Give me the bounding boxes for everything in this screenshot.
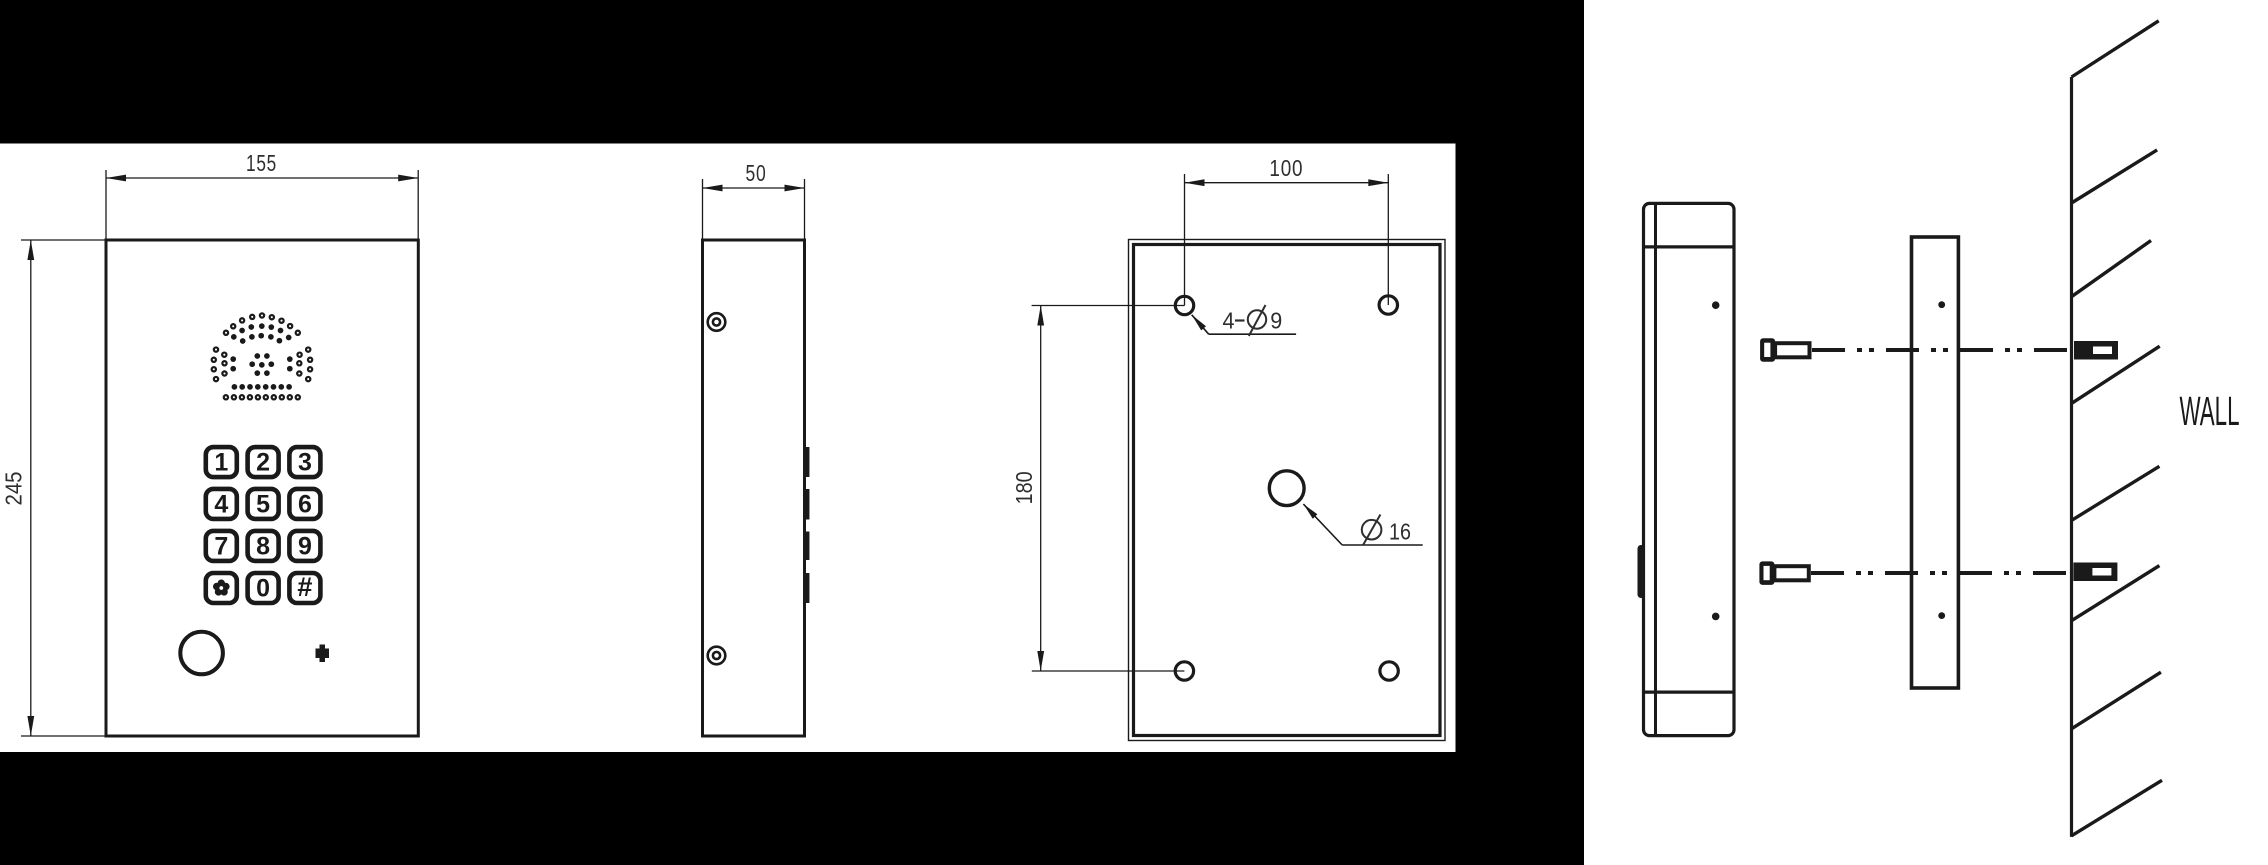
svg-text:16: 16 — [1389, 519, 1411, 545]
svg-text:0: 0 — [256, 575, 270, 603]
svg-text:7: 7 — [214, 533, 228, 561]
svg-text:180: 180 — [1011, 471, 1037, 504]
svg-text:1: 1 — [214, 449, 228, 477]
svg-text:6: 6 — [298, 491, 312, 519]
svg-text:2: 2 — [256, 449, 270, 477]
svg-text:8: 8 — [256, 533, 270, 561]
svg-text:#: # — [297, 572, 312, 602]
svg-text:245: 245 — [1, 472, 27, 506]
svg-text:9: 9 — [1270, 308, 1282, 334]
svg-text:9: 9 — [298, 533, 312, 561]
svg-text:4: 4 — [214, 491, 228, 519]
svg-text:155: 155 — [246, 150, 277, 176]
svg-text:5: 5 — [256, 491, 270, 519]
svg-text:50: 50 — [746, 160, 767, 186]
svg-text:100: 100 — [1269, 155, 1303, 181]
svg-text:4: 4 — [1223, 308, 1235, 334]
svg-text:3: 3 — [298, 449, 312, 477]
svg-text:WALL: WALL — [2180, 388, 2240, 434]
